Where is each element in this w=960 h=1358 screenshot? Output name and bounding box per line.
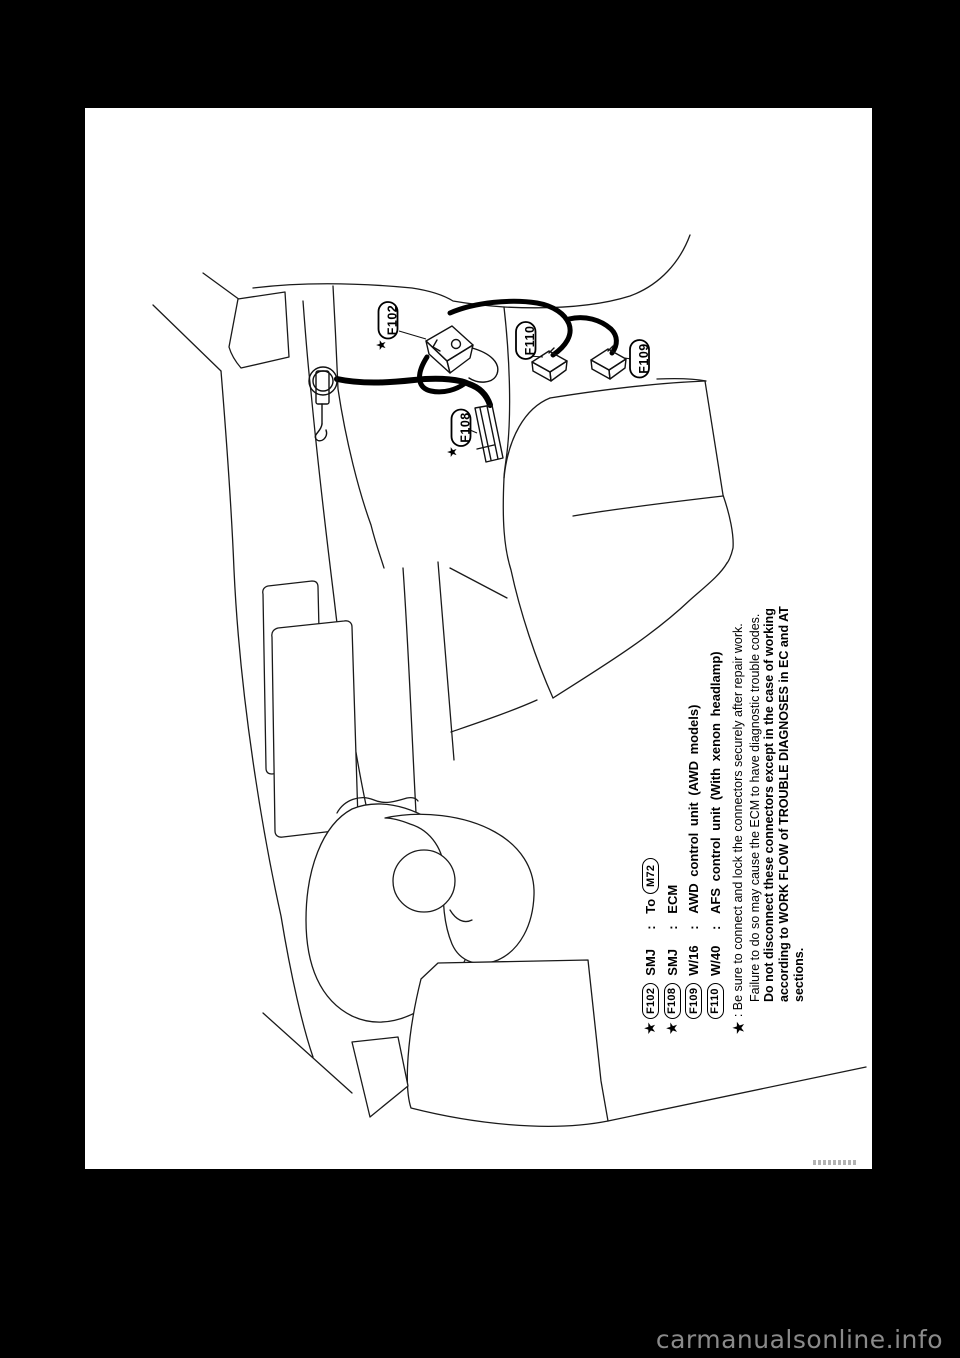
connector-f108-body bbox=[475, 405, 503, 462]
f108-callout-label: F108 bbox=[458, 412, 472, 443]
console-edge-2 bbox=[438, 562, 454, 760]
knee-panel bbox=[407, 960, 608, 1126]
manual-page: F102 ★ F110 F109 F108 ★ ★F102SMJ:ToM72★F… bbox=[85, 108, 872, 1169]
steering-hub-opening bbox=[393, 850, 455, 912]
smj-connector-f102 bbox=[426, 326, 473, 373]
f108-end-cap bbox=[477, 445, 494, 449]
note-line: ★ : Be sure to connect and lock the conn… bbox=[731, 569, 748, 1035]
under-seat-floor bbox=[451, 700, 537, 732]
connector-description: ToM72 bbox=[642, 858, 659, 914]
harness-arc-f110 bbox=[450, 301, 570, 355]
floor-diagonal-left bbox=[263, 1013, 352, 1093]
star-icon: ★ bbox=[643, 1019, 658, 1035]
a-pillar-edge-2 bbox=[153, 305, 221, 371]
legend-row: ★F102SMJ:ToM72 bbox=[640, 569, 662, 1035]
connector-code: SMJ bbox=[643, 930, 658, 976]
f109-top-face bbox=[591, 349, 626, 370]
legend-block: ★F102SMJ:ToM72★F108SMJ:ECMF109W/16:AWD c… bbox=[640, 569, 810, 1035]
legend-row: ★F108SMJ:ECM bbox=[662, 569, 684, 1035]
grommet-and-hook bbox=[309, 367, 337, 441]
quarter-window bbox=[229, 292, 289, 368]
f110-top-face bbox=[532, 351, 567, 372]
f102-callout-label: F102 bbox=[385, 305, 399, 336]
legend-row: F110W/40:AFS control unit (With xenon he… bbox=[705, 569, 727, 1035]
separator: : bbox=[643, 914, 658, 930]
console-edge bbox=[403, 568, 416, 813]
seat-top-edge bbox=[550, 381, 705, 398]
separator: : bbox=[731, 1010, 745, 1020]
figure-code-smudge bbox=[813, 1160, 857, 1165]
connector-id-badge: F110 bbox=[707, 983, 724, 1019]
connector-id-badge: F109 bbox=[685, 983, 702, 1019]
connector-description: ECM bbox=[665, 885, 680, 914]
floor-sill-line bbox=[608, 1067, 866, 1121]
note-line: sections. bbox=[792, 569, 807, 1035]
note-line: according to WORK FLOW of TROUBLE DIAGNO… bbox=[777, 569, 792, 1035]
legend-rows: ★F102SMJ:ToM72★F108SMJ:ECMF109W/16:AWD c… bbox=[640, 569, 726, 1035]
seat-seam bbox=[573, 496, 723, 516]
connector-f110-body bbox=[532, 348, 567, 381]
door-pocket-lower bbox=[272, 621, 358, 837]
smj-bolt bbox=[452, 340, 461, 349]
manual-scan-page: F102 ★ F110 F109 F108 ★ ★F102SMJ:ToM72★F… bbox=[0, 0, 960, 1358]
smj-left-face bbox=[426, 341, 450, 373]
seat-right-edge bbox=[705, 381, 733, 563]
connector-code: SMJ bbox=[665, 930, 680, 976]
f102-star-icon: ★ bbox=[375, 339, 390, 351]
harness-loop bbox=[420, 357, 464, 392]
connector-code: W/16 bbox=[686, 930, 701, 976]
dash-top-edge bbox=[253, 284, 504, 307]
b-pillar-curve bbox=[504, 235, 690, 308]
connector-id-badge: F108 bbox=[664, 983, 681, 1019]
floor-line-left bbox=[450, 568, 507, 598]
f110-callout-label: F110 bbox=[523, 326, 537, 356]
watermark: carmanualsonline.info bbox=[656, 1325, 943, 1354]
dash-side-line-2 bbox=[333, 286, 384, 568]
knee-panel-small bbox=[352, 1037, 408, 1117]
f109-callout-label: F109 bbox=[637, 343, 651, 374]
connector-code: W/40 bbox=[708, 930, 723, 976]
separator: : bbox=[665, 914, 680, 930]
note-line: Failure to do so may cause the ECM to ha… bbox=[748, 569, 763, 1035]
f110-left-face bbox=[532, 362, 551, 381]
connector-f109-body bbox=[591, 346, 626, 379]
star-icon: ★ bbox=[731, 1021, 748, 1035]
separator: : bbox=[708, 914, 723, 930]
seat-left-edge bbox=[503, 398, 553, 698]
thin-wire-loop bbox=[469, 348, 498, 382]
star-icon: ★ bbox=[665, 1019, 680, 1035]
f109-right-face bbox=[609, 359, 626, 379]
f108-star-icon: ★ bbox=[446, 446, 461, 458]
connector-description: AWD control unit (AWD models) bbox=[686, 705, 701, 914]
smj-top-face bbox=[426, 326, 473, 361]
hook-curl bbox=[315, 424, 326, 441]
grommet-plug bbox=[316, 371, 329, 404]
leader-f102 bbox=[399, 331, 426, 339]
separator: : bbox=[686, 914, 701, 930]
harness-main-run bbox=[337, 379, 490, 405]
harness-branch-f109 bbox=[569, 318, 616, 353]
f110-right-face bbox=[550, 361, 567, 381]
smj-right-face bbox=[447, 345, 473, 373]
ref-connector-badge: M72 bbox=[642, 858, 659, 894]
f109-left-face bbox=[591, 360, 610, 379]
a-pillar-edge bbox=[203, 273, 240, 300]
legend-note: ★ : Be sure to connect and lock the conn… bbox=[731, 569, 807, 1035]
connector-id-badge: F102 bbox=[642, 983, 659, 1019]
connector-description: AFS control unit (With xenon headlamp) bbox=[708, 651, 723, 914]
note-line: Do not disconnect these connectors excep… bbox=[762, 569, 777, 1035]
legend-row: F109W/16:AWD control unit (AWD models) bbox=[683, 569, 705, 1035]
